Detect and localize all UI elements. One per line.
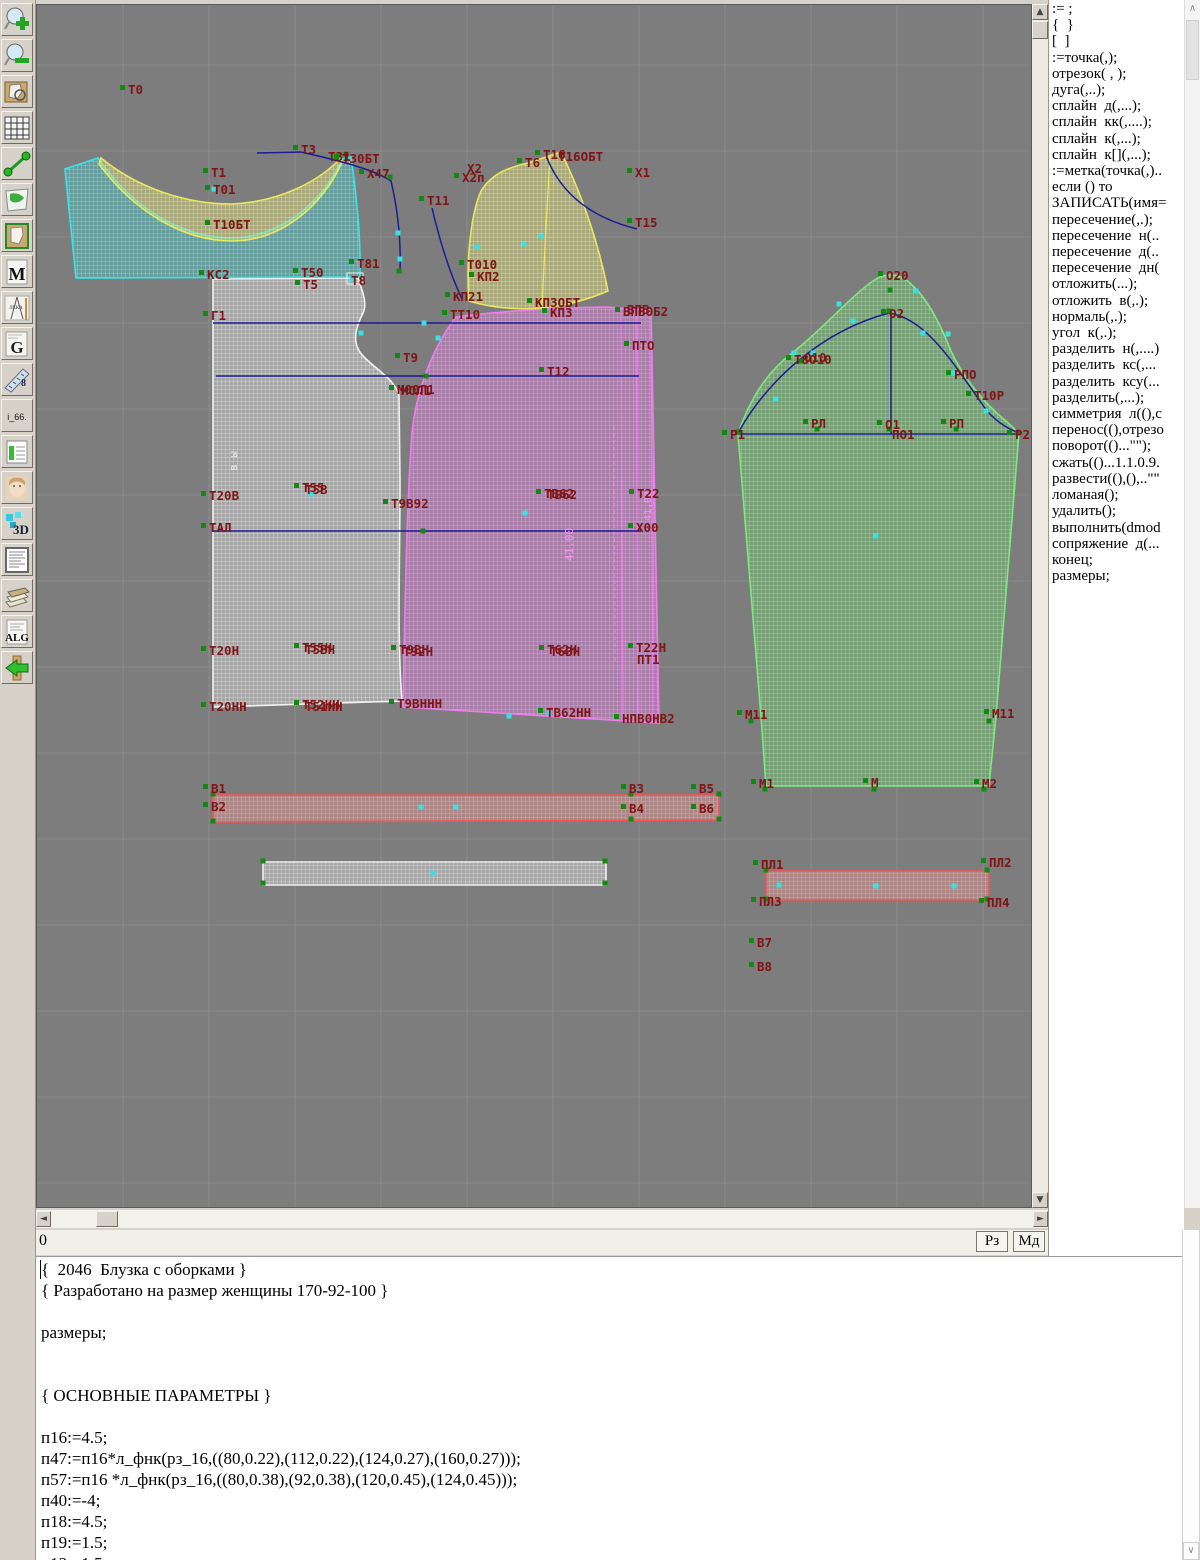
text-caret — [40, 1260, 41, 1279]
point-label: Т6ВН — [550, 644, 580, 659]
pattern-point[interactable] — [454, 173, 459, 178]
command-item[interactable]: разделить н(,....) — [1052, 341, 1184, 357]
pattern-point[interactable] — [878, 271, 883, 276]
svg-text:G: G — [10, 338, 23, 357]
pattern-point[interactable] — [538, 708, 543, 713]
command-item[interactable]: дуга(,..); — [1052, 82, 1184, 98]
point-label: НПВ0НВ2 — [622, 711, 675, 726]
pattern-icon — [3, 222, 31, 250]
pattern-point[interactable] — [863, 778, 868, 783]
pattern-point[interactable] — [421, 529, 426, 534]
zoom-out-icon — [3, 42, 31, 70]
canvas-vertical-scrollbar[interactable]: ▲ ▼ — [1032, 4, 1048, 1208]
command-item[interactable]: удалить(); — [1052, 503, 1184, 519]
command-item[interactable]: ЗАПИСАТЬ(имя= — [1052, 195, 1184, 211]
rotated-annotation: 41.00 — [563, 528, 576, 561]
hscroll-thumb[interactable] — [96, 1211, 118, 1227]
pattern-point[interactable] — [751, 897, 756, 902]
pattern-point[interactable] — [203, 168, 208, 173]
point-label: КС2 — [207, 267, 230, 282]
construction-line — [257, 152, 301, 153]
point-label: Р1 — [730, 427, 745, 442]
pattern-point[interactable] — [987, 719, 992, 724]
pattern-point[interactable] — [261, 859, 266, 864]
point-label: О2 — [889, 306, 904, 321]
photo-button[interactable] — [1, 471, 33, 504]
point-label: Т3 — [301, 142, 316, 157]
vscroll-thumb[interactable] — [1032, 21, 1048, 39]
pattern-point[interactable] — [629, 817, 634, 822]
scroll-down-icon[interactable]: ▼ — [1032, 1192, 1048, 1208]
pattern-point[interactable] — [877, 420, 882, 425]
alg-button[interactable]: ALG — [1, 615, 33, 648]
pattern-point[interactable] — [295, 280, 300, 285]
pattern-point[interactable] — [627, 218, 632, 223]
pattern-point[interactable] — [539, 367, 544, 372]
pattern-point[interactable] — [397, 269, 402, 274]
point-label: Т5В — [305, 482, 328, 497]
pattern-point[interactable] — [120, 85, 125, 90]
svg-text:3D: 3D — [13, 522, 29, 537]
command-item[interactable]: :=метка(точка(,).. — [1052, 163, 1184, 179]
curve-marker — [419, 805, 424, 810]
segment-icon — [3, 150, 31, 178]
point-label: ПЛ3 — [759, 894, 782, 909]
point-label: Т8 — [351, 273, 366, 288]
point-label: Т81 — [357, 256, 380, 271]
point-label: Х2п — [462, 170, 485, 185]
command-item[interactable]: [ ] — [1052, 33, 1184, 49]
rz-button[interactable]: Рз — [976, 1231, 1008, 1252]
pattern-point[interactable] — [749, 938, 754, 943]
point-label: РПО — [954, 367, 977, 382]
pattern-point[interactable] — [294, 643, 299, 648]
pattern-point[interactable] — [691, 804, 696, 809]
editor-line: п40:=-4; — [41, 1490, 1182, 1511]
command-item[interactable]: отложить в(,.); — [1052, 293, 1184, 309]
pattern-point[interactable] — [349, 259, 354, 264]
books-icon — [3, 582, 31, 610]
pattern-point[interactable] — [424, 374, 429, 379]
pattern-point[interactable] — [881, 309, 886, 314]
pattern-point[interactable] — [614, 714, 619, 719]
panel-scrollbar[interactable]: ∧ — [1184, 0, 1200, 1208]
pattern-point[interactable] — [419, 196, 424, 201]
command-item[interactable]: развести((),(),.."" — [1052, 471, 1184, 487]
pattern-point[interactable] — [203, 311, 208, 316]
status-left-value: 0 — [39, 1232, 47, 1250]
point-label: М11 — [745, 707, 768, 722]
books-button[interactable] — [1, 579, 33, 612]
svg-text:M: M — [9, 264, 26, 284]
pattern-point[interactable] — [294, 483, 299, 488]
code-editor[interactable]: { 2046 Блузка с оборками }{ Разработано … — [36, 1256, 1182, 1560]
pattern-point[interactable] — [628, 643, 633, 648]
point-label: Т9В92 — [391, 496, 429, 511]
command-item[interactable]: нормаль(,.); — [1052, 309, 1184, 325]
point-label: В1 — [211, 781, 226, 796]
command-item[interactable]: ломаная(); — [1052, 487, 1184, 503]
grid-button[interactable] — [1, 111, 33, 144]
point-label: В7 — [757, 935, 772, 950]
pattern-point[interactable] — [974, 779, 979, 784]
pattern-point[interactable] — [205, 185, 210, 190]
point-label: ПТ1 — [637, 652, 660, 667]
threed-icon: 3D — [3, 510, 31, 538]
curve-marker — [436, 336, 441, 341]
editor-line — [41, 1364, 1182, 1385]
command-item[interactable]: пересечение дн( — [1052, 260, 1184, 276]
threed-button[interactable]: 3D — [1, 507, 33, 540]
command-item[interactable]: перенос((),отрезо — [1052, 422, 1184, 438]
pattern-point[interactable] — [469, 272, 474, 277]
point-label: КП2 — [477, 269, 500, 284]
command-item[interactable]: отрезок( , ); — [1052, 66, 1184, 82]
svg-text:i_66.: i_66. — [7, 412, 27, 422]
command-item[interactable]: угол к(,.); — [1052, 325, 1184, 341]
pattern-point[interactable] — [261, 881, 266, 886]
editor-line: п19:=1.5; — [41, 1532, 1182, 1553]
sleeve-piece[interactable] — [738, 275, 1019, 786]
pattern-point[interactable] — [749, 962, 754, 967]
curve-marker — [946, 332, 951, 337]
i66-button[interactable]: i_66. — [1, 399, 33, 432]
point-label: МОЛ1 — [401, 383, 431, 398]
toolbar: MЛЕКАG8i_66.3DALG — [0, 0, 36, 1560]
pattern-point[interactable] — [535, 150, 540, 155]
pattern-point[interactable] — [293, 145, 298, 150]
point-label: ПЛ2 — [989, 855, 1012, 870]
point-label: Т30БТ — [342, 151, 380, 166]
panel-scroll-thumb[interactable] — [1186, 20, 1199, 80]
grid-icon — [3, 114, 31, 142]
point-label: Т0 — [128, 82, 143, 97]
pattern-point[interactable] — [442, 310, 447, 315]
command-item[interactable]: { } — [1052, 17, 1184, 33]
pattern-point[interactable] — [629, 489, 634, 494]
editor-scroll-down-icon[interactable]: ∨ — [1183, 1542, 1199, 1560]
curve-marker — [396, 231, 401, 236]
command-item[interactable]: разделить кс(,... — [1052, 357, 1184, 373]
point-label: О20 — [886, 268, 909, 283]
curve-marker — [475, 245, 480, 250]
pattern-point[interactable] — [294, 700, 299, 705]
point-label: ТВ62НН — [546, 705, 591, 720]
curve-marker — [774, 397, 779, 402]
pattern-point[interactable] — [359, 169, 364, 174]
list-button[interactable] — [1, 543, 33, 576]
curve-marker — [984, 409, 989, 414]
point-label: Т5ВН — [305, 642, 335, 657]
pattern-point[interactable] — [691, 784, 696, 789]
pattern-point[interactable] — [203, 802, 208, 807]
point-label: КП21 — [453, 289, 483, 304]
pattern-point[interactable] — [624, 341, 629, 346]
command-item[interactable]: разделить(,...); — [1052, 390, 1184, 406]
pattern-point[interactable] — [389, 699, 394, 704]
command-item[interactable]: конец; — [1052, 552, 1184, 568]
point-label: М2 — [982, 776, 997, 791]
command-item[interactable]: сплайн к(,...); — [1052, 131, 1184, 147]
ruler-button[interactable]: 8 — [1, 363, 33, 396]
point-label: ВПВ — [627, 302, 650, 317]
curve-marker — [523, 511, 528, 516]
status-bar: 0 Рз Мд — [36, 1230, 1048, 1255]
drafting-icon: ЛЕКА — [3, 294, 31, 322]
m-page-button[interactable]: M — [1, 255, 33, 288]
exit-button[interactable] — [1, 651, 33, 684]
point-label: В2 — [211, 799, 226, 814]
command-item[interactable]: поворот(()...""); — [1052, 438, 1184, 454]
editor-line: { ОСНОВНЫЕ ПАРАМЕТРЫ } — [41, 1385, 1182, 1406]
pattern-point[interactable] — [628, 523, 633, 528]
point-label: Х1 — [635, 165, 650, 180]
command-item[interactable]: сжать(()...1.1.0.9. — [1052, 455, 1184, 471]
curve-marker — [914, 289, 919, 294]
curve-marker — [422, 321, 427, 326]
point-label: М — [871, 775, 879, 790]
point-label: В8 — [757, 959, 772, 974]
command-item[interactable]: :=точка(,); — [1052, 50, 1184, 66]
point-label: Т9 — [403, 350, 418, 365]
drafting-button[interactable]: ЛЕКА — [1, 291, 33, 324]
pattern-point[interactable] — [205, 220, 210, 225]
editor-line: { Разработано на размер женщины 170-92-1… — [41, 1280, 1182, 1301]
pattern-point[interactable] — [621, 804, 626, 809]
command-item[interactable]: разделить ксу(... — [1052, 374, 1184, 390]
pattern-point[interactable] — [979, 898, 984, 903]
table-icon — [3, 438, 31, 466]
pattern-point[interactable] — [888, 288, 893, 293]
curve-marker — [522, 242, 527, 247]
editor-line: п18:=4.5; — [41, 1511, 1182, 1532]
curve-marker — [837, 302, 842, 307]
command-item[interactable]: если () то — [1052, 179, 1184, 195]
command-item[interactable]: сплайн д(,...); — [1052, 98, 1184, 114]
point-label: О10 — [804, 350, 827, 365]
pattern-point[interactable] — [615, 307, 620, 312]
app-window: MЛЕКАG8i_66.3DALG в ы41.0041.00Т0Т3Т31Т3… — [0, 0, 1200, 1560]
point-label: Т92Н — [403, 644, 433, 659]
point-label: Т20В — [209, 488, 240, 503]
pattern-point[interactable] — [383, 499, 388, 504]
ruler-icon: 8 — [3, 366, 31, 394]
pattern-point[interactable] — [391, 645, 396, 650]
scroll-left-icon[interactable]: ◄ — [36, 1211, 51, 1227]
curve-marker — [952, 884, 957, 889]
point-label: ТБ62 — [547, 487, 577, 502]
drawing-canvas[interactable]: в ы41.0041.00Т0Т3Т31Т30БТХ47Т1Т01Т10БТКС… — [36, 4, 1032, 1208]
editor-scrollbar[interactable]: ∨ — [1182, 1230, 1199, 1560]
scroll-right-icon[interactable]: ► — [1033, 1211, 1048, 1227]
scroll-up-icon[interactable]: ▲ — [1032, 4, 1048, 20]
rotated-annotation: в ы — [227, 451, 240, 471]
pattern-point[interactable] — [786, 355, 791, 360]
command-item[interactable]: отложить(...); — [1052, 276, 1184, 292]
pattern-point[interactable] — [395, 353, 400, 358]
pattern-point[interactable] — [389, 385, 394, 390]
curve-marker — [431, 871, 436, 876]
front-piece[interactable] — [403, 307, 659, 723]
point-label: Г1 — [211, 308, 226, 323]
command-item[interactable]: симметрия л((),с — [1052, 406, 1184, 422]
point-label: ПО1 — [892, 427, 915, 442]
point-label: Т11 — [427, 193, 450, 208]
svg-text:ЛЕКА: ЛЕКА — [9, 306, 23, 311]
command-item[interactable]: сплайн кк(,....); — [1052, 114, 1184, 130]
pattern-point[interactable] — [803, 419, 808, 424]
point-label: Х00 — [636, 520, 659, 535]
exit-icon — [3, 654, 31, 682]
command-item[interactable]: пересечение д(.. — [1052, 244, 1184, 260]
pattern-point[interactable] — [946, 370, 951, 375]
point-label: ПТО — [632, 338, 655, 353]
pattern-point[interactable] — [717, 792, 722, 797]
g-page-button[interactable]: G — [1, 327, 33, 360]
photo-icon — [3, 474, 31, 502]
point-label: ПЛ4 — [987, 895, 1010, 910]
pattern-point[interactable] — [211, 819, 216, 824]
command-item[interactable]: пересечение н(.. — [1052, 228, 1184, 244]
point-label: М1 — [759, 776, 774, 791]
pattern-point[interactable] — [203, 784, 208, 789]
pattern-point[interactable] — [539, 645, 544, 650]
point-label: РП — [949, 416, 964, 431]
editor-line — [41, 1406, 1182, 1427]
command-item[interactable]: := ; — [1052, 1, 1184, 17]
command-item[interactable]: пересечение(,.); — [1052, 212, 1184, 228]
pattern-point[interactable] — [751, 779, 756, 784]
curve-marker — [398, 257, 403, 262]
side-ruffle-piece[interactable] — [468, 152, 608, 309]
editor-line: п13:=1.5; — [41, 1553, 1182, 1560]
pattern-button[interactable] — [1, 219, 33, 252]
point-label: Т10Р — [974, 388, 1004, 403]
command-item[interactable]: выполнить(dmod — [1052, 520, 1184, 536]
curve-marker — [851, 319, 856, 324]
editor-line: п16:=4.5; — [41, 1427, 1182, 1448]
point-label: Т10БТ — [213, 217, 251, 232]
command-item[interactable]: сопряжение д(... — [1052, 536, 1184, 552]
point-label: В4 — [629, 801, 644, 816]
point-label: М11 — [992, 706, 1015, 721]
segment-button[interactable] — [1, 147, 33, 180]
g-page-icon: G — [3, 330, 31, 358]
pattern-point[interactable] — [199, 270, 204, 275]
pattern-point[interactable] — [527, 298, 532, 303]
point-label: Р2 — [1015, 427, 1030, 442]
canvas-horizontal-scrollbar[interactable]: ◄ ► — [36, 1210, 1048, 1228]
table-button[interactable] — [1, 435, 33, 468]
point-label: РЛ — [811, 416, 826, 431]
point-label: Т12 — [547, 364, 570, 379]
curve-marker — [874, 534, 879, 539]
pattern-point[interactable] — [603, 859, 608, 864]
pattern-point[interactable] — [201, 523, 206, 528]
point-label: Т01 — [213, 182, 236, 197]
point-label: Т51НН — [305, 699, 343, 714]
pattern-point[interactable] — [627, 168, 632, 173]
point-label: КП3 — [550, 305, 573, 320]
curve-marker — [874, 884, 879, 889]
svg-text:8: 8 — [21, 378, 26, 389]
point-label: Т15 — [635, 215, 658, 230]
point-label: В5 — [699, 781, 714, 796]
preview-icon — [3, 78, 31, 106]
zoom-in-button[interactable] — [1, 3, 33, 36]
point-label: ПЛ1 — [761, 857, 784, 872]
zoom-out-button[interactable] — [1, 39, 33, 72]
pattern-point[interactable] — [966, 391, 971, 396]
map-button[interactable] — [1, 183, 33, 216]
point-label: Т1 — [211, 165, 226, 180]
point-label: В3 — [629, 781, 644, 796]
point-label: Т9ВННН — [397, 696, 442, 711]
pattern-point[interactable] — [293, 268, 298, 273]
pattern-point[interactable] — [201, 491, 206, 496]
point-label: Т20Н — [209, 643, 239, 658]
pattern-point[interactable] — [941, 419, 946, 424]
pattern-point[interactable] — [737, 710, 742, 715]
pattern-point[interactable] — [334, 154, 339, 159]
point-label: Т22 — [637, 486, 660, 501]
editor-line — [41, 1343, 1182, 1364]
svg-text:ALG: ALG — [5, 632, 29, 644]
pattern-point[interactable] — [1007, 430, 1012, 435]
point-label: Т5 — [303, 277, 318, 292]
pattern-point[interactable] — [542, 308, 547, 313]
point-label: ТАЛ — [209, 520, 232, 535]
pattern-point[interactable] — [445, 292, 450, 297]
i66-icon: i_66. — [3, 402, 31, 430]
pattern-point[interactable] — [981, 858, 986, 863]
pattern-point[interactable] — [536, 489, 541, 494]
alg-icon: ALG — [3, 618, 31, 646]
pattern-point[interactable] — [722, 430, 727, 435]
editor-line: п57:=п16 *л_фнк(рз_16,((80,0.38),(92,0.3… — [41, 1469, 1182, 1490]
pattern-point[interactable] — [984, 709, 989, 714]
command-item[interactable]: сплайн к[](,...); — [1052, 147, 1184, 163]
editor-line: { 2046 Блузка с оборками } — [41, 1259, 1182, 1280]
pattern-canvas[interactable]: в ы41.0041.00Т0Т3Т31Т30БТХ47Т1Т01Т10БТКС… — [37, 5, 1031, 1207]
curve-marker — [359, 331, 364, 336]
point-label: Т16ОБТ — [558, 149, 603, 164]
pattern-point[interactable] — [603, 881, 608, 886]
list-icon — [3, 546, 31, 574]
construction-curve — [432, 208, 462, 299]
pattern-point[interactable] — [753, 860, 758, 865]
pattern-point[interactable] — [201, 646, 206, 651]
preview-button[interactable] — [1, 75, 33, 108]
editor-line: размеры; — [41, 1322, 1182, 1343]
point-label: В6 — [699, 801, 714, 816]
editor-line: п47:=п16*л_фнк(рз_16,((80,0.22),(112,0.2… — [41, 1448, 1182, 1469]
editor-line — [41, 1301, 1182, 1322]
curve-marker — [921, 331, 926, 336]
md-button[interactable]: Мд — [1013, 1231, 1045, 1252]
pattern-point[interactable] — [717, 817, 722, 822]
pattern-point[interactable] — [201, 702, 206, 707]
point-label: Х47 — [367, 166, 390, 181]
command-item[interactable]: размеры; — [1052, 568, 1184, 584]
pattern-point[interactable] — [459, 260, 464, 265]
panel-scroll-up-icon[interactable]: ∧ — [1185, 0, 1200, 18]
point-label: Т20НН — [209, 699, 247, 714]
curve-marker — [539, 234, 544, 239]
point-label: Т6 — [525, 155, 540, 170]
pattern-point[interactable] — [621, 784, 626, 789]
pattern-point[interactable] — [517, 158, 522, 163]
